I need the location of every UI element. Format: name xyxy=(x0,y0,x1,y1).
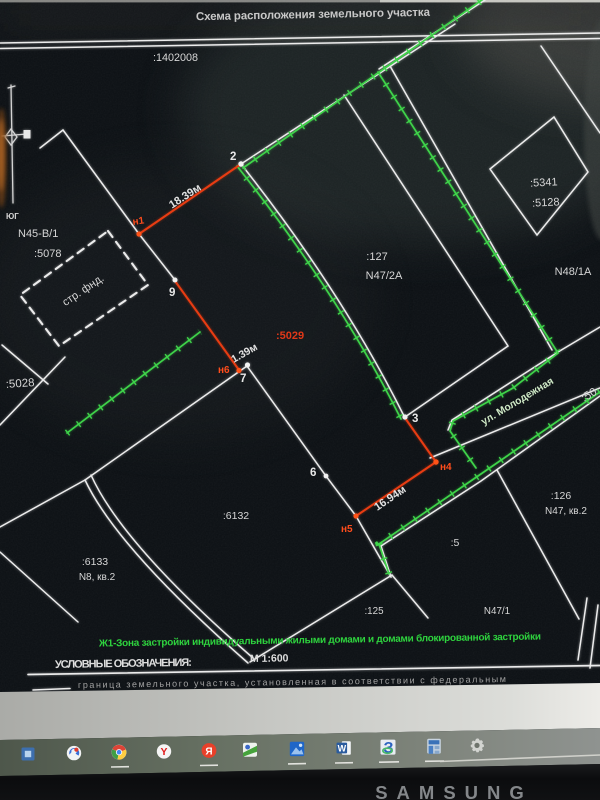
svg-text:N47/1: N47/1 xyxy=(484,606,510,617)
svg-text:N47, кв.2: N47, кв.2 xyxy=(545,506,587,517)
svg-text:N8, кв.2: N8, кв.2 xyxy=(79,572,116,583)
svg-text::5028: :5028 xyxy=(5,377,35,391)
svg-text:N48/1А: N48/1А xyxy=(555,266,592,278)
svg-text::6133: :6133 xyxy=(82,556,108,568)
svg-text:УСЛОВНЫЕ ОБОЗНАЧЕНИЯ:: УСЛОВНЫЕ ОБОЗНАЧЕНИЯ: xyxy=(55,657,192,671)
svg-text:9: 9 xyxy=(169,287,175,299)
svg-text:н6: н6 xyxy=(218,365,230,376)
svg-text::6132: :6132 xyxy=(223,510,249,522)
svg-text:6: 6 xyxy=(310,467,316,479)
svg-text:Y: Y xyxy=(160,746,167,758)
svg-text:SAMSUNG: SAMSUNG xyxy=(375,782,533,800)
svg-text::127: :127 xyxy=(366,251,387,263)
svg-text::5341: :5341 xyxy=(530,176,558,189)
svg-text:Я: Я xyxy=(205,746,212,757)
svg-text:2: 2 xyxy=(230,151,236,163)
svg-text:3: 3 xyxy=(412,413,418,425)
svg-text:н1: н1 xyxy=(132,215,145,228)
svg-text:N47/2А: N47/2А xyxy=(366,270,403,282)
svg-text::5: :5 xyxy=(451,537,460,549)
svg-text:ЮГ: ЮГ xyxy=(6,212,19,221)
svg-text::125: :125 xyxy=(364,606,384,617)
svg-text:W: W xyxy=(338,743,347,753)
svg-text::1402008: :1402008 xyxy=(153,52,198,64)
svg-text:н4: н4 xyxy=(440,462,452,473)
svg-text::5078: :5078 xyxy=(34,248,62,260)
svg-text::126: :126 xyxy=(551,490,572,502)
svg-text::5128: :5128 xyxy=(532,196,560,209)
svg-text:н5: н5 xyxy=(341,524,353,535)
svg-text:М 1:600: М 1:600 xyxy=(250,652,289,665)
svg-text::5029: :5029 xyxy=(276,330,304,342)
svg-text:7: 7 xyxy=(240,373,246,385)
svg-text:N45-В/1: N45-В/1 xyxy=(18,228,58,240)
